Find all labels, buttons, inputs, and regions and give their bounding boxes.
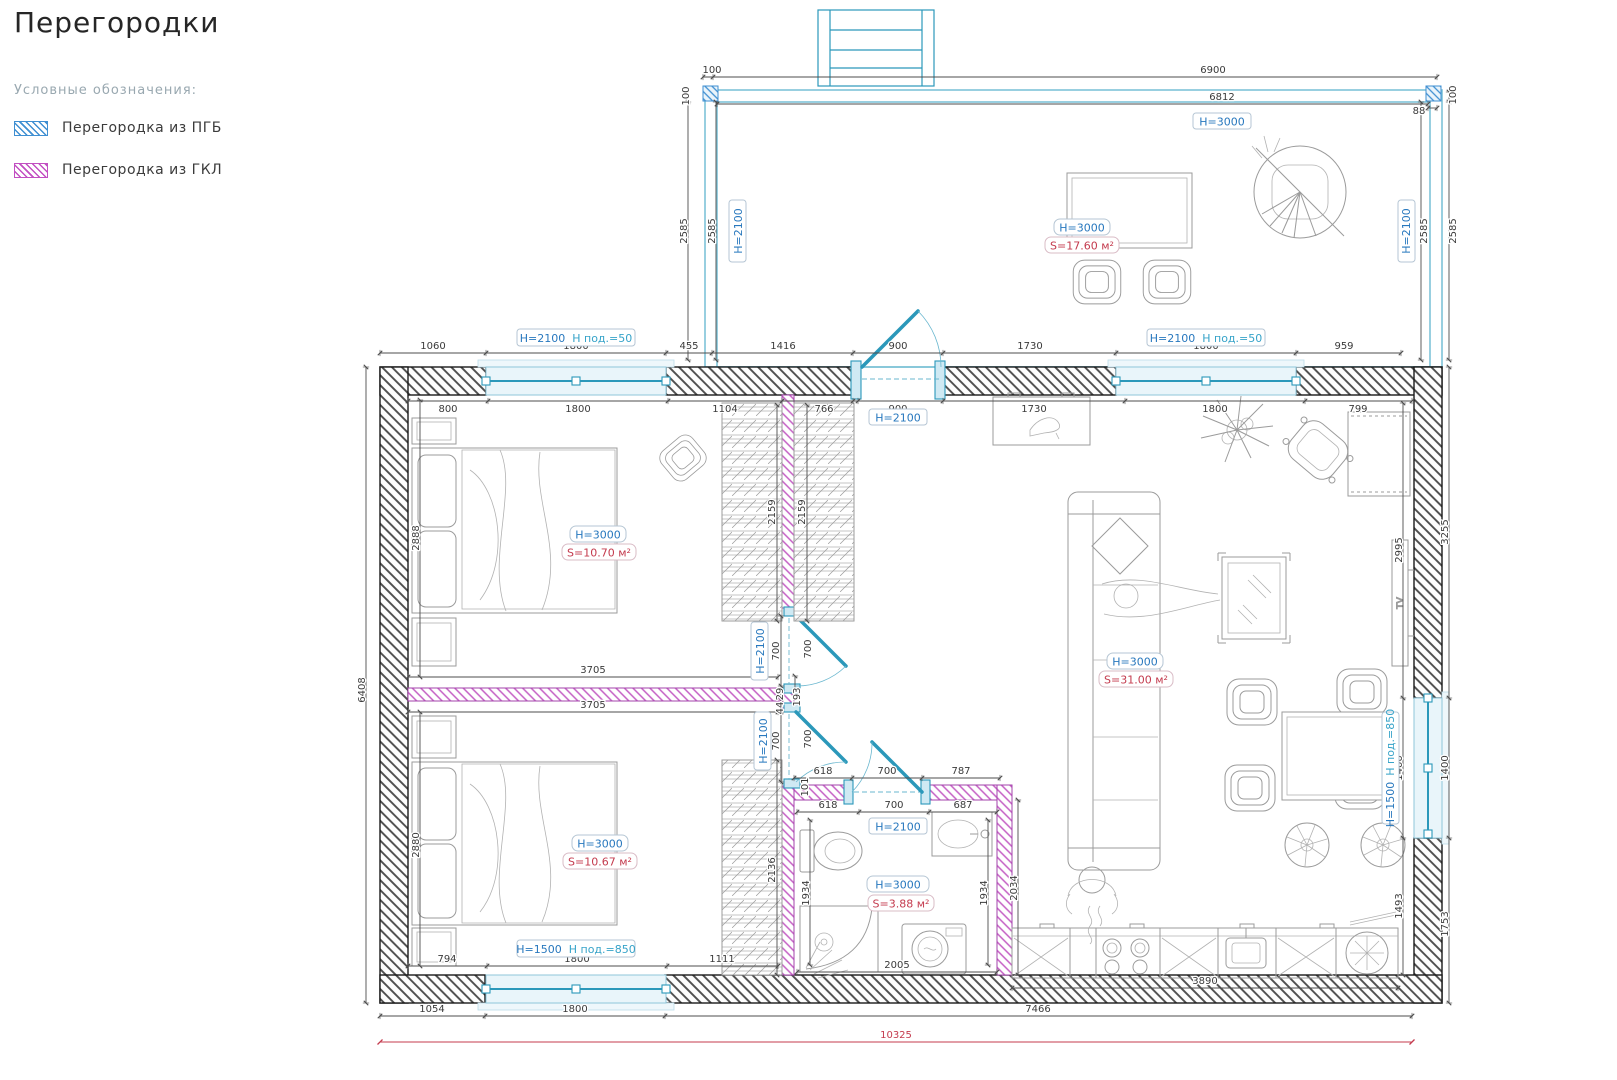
opening-labels: H=2100Н под.=50 H=2100Н под.=50 H=1500Н … xyxy=(516,113,1415,957)
dim: 88 xyxy=(1413,106,1426,117)
dim: 6900 xyxy=(1200,65,1225,76)
dim: 100 xyxy=(681,86,692,105)
entry-door xyxy=(851,311,945,399)
dim: 2880 xyxy=(411,832,422,857)
dim: 100 xyxy=(702,65,721,76)
dim: 618 xyxy=(813,766,832,777)
dim: 2585 xyxy=(1419,218,1430,243)
svg-text:H=2100Н под.=50: H=2100Н под.=50 xyxy=(1150,332,1263,345)
dim: 455 xyxy=(679,341,698,352)
dim: 2585 xyxy=(1448,218,1459,243)
door-height-label: H=2100 xyxy=(757,718,770,763)
dim: 44 xyxy=(775,702,786,715)
dim: 2034 xyxy=(1009,875,1020,900)
dim: 1060 xyxy=(420,341,445,352)
console-desk xyxy=(1348,412,1410,496)
room-area: S=3.88 м² xyxy=(873,898,930,911)
dim: 700 xyxy=(771,641,782,660)
dim: 900 xyxy=(888,341,907,352)
dim: 193 xyxy=(792,687,803,706)
drawing-header: Перегородки Условные обозначения: Перего… xyxy=(14,6,222,204)
dim: 1493 xyxy=(1394,893,1405,918)
kitchen-counter xyxy=(1012,912,1398,978)
legend-heading: Условные обозначения: xyxy=(14,83,222,98)
room-height: H=3000 xyxy=(1059,222,1104,235)
dim: 687 xyxy=(953,800,972,811)
window-height-label: H=1500 xyxy=(1384,782,1397,827)
dim: 700 xyxy=(803,639,814,658)
legend-label: Перегородка из ГКЛ xyxy=(62,162,222,178)
dim: 3705 xyxy=(580,700,605,711)
ceiling-lamps xyxy=(1285,823,1405,867)
window-sill-label: Н под.=50 xyxy=(572,332,632,345)
dim: 800 xyxy=(438,404,457,415)
dim: 794 xyxy=(437,954,456,965)
bedroom1-furniture xyxy=(412,418,710,666)
dim: 3255 xyxy=(1440,519,1451,544)
gkl-hatch-swatch-icon xyxy=(14,163,48,178)
veranda-height-label: H=3000 xyxy=(1199,116,1244,129)
dim: 1730 xyxy=(1017,341,1042,352)
dim: 7466 xyxy=(1025,1004,1050,1015)
dim: 1934 xyxy=(801,880,812,905)
dim: 618 xyxy=(818,800,837,811)
dim: 1800 xyxy=(565,404,590,415)
legend-item-pgb: Перегородка из ПГБ xyxy=(14,120,222,136)
kitchen-person xyxy=(1066,867,1117,944)
dim: 700 xyxy=(803,729,814,748)
dim: 3705 xyxy=(580,665,605,676)
svg-text:H=1500Н под.=850: H=1500Н под.=850 xyxy=(516,943,636,956)
svg-text:H=2100Н под.=50: H=2100Н под.=50 xyxy=(520,332,633,345)
door-height-label: H=2100 xyxy=(754,628,767,673)
window-height-label: H=1500 xyxy=(516,943,561,956)
room-height: H=3000 xyxy=(875,879,920,892)
partition-hall-upper xyxy=(782,395,794,608)
dim: 2159 xyxy=(767,499,778,524)
window-height-label: H=2100 xyxy=(1150,332,1195,345)
dim: 101 xyxy=(800,777,811,796)
dim: 1400 xyxy=(1440,755,1451,780)
dim: 700 xyxy=(771,731,782,750)
floor-plan: TV xyxy=(0,0,1617,1080)
dim: 2136 xyxy=(767,857,778,882)
dim: 6812 xyxy=(1209,92,1234,103)
window-top-left xyxy=(478,360,674,395)
door-height-label: H=2100 xyxy=(875,412,920,425)
dim: 799 xyxy=(1348,404,1367,415)
room-area: S=10.70 м² xyxy=(567,547,631,560)
partition-bath-top-right xyxy=(922,785,997,800)
room-height: H=3000 xyxy=(1112,656,1157,669)
dim-total: 10325 xyxy=(880,1030,912,1041)
legend-item-gkl: Перегородка из ГКЛ xyxy=(14,162,222,178)
dim: 700 xyxy=(877,766,896,777)
dim: 1730 xyxy=(1021,404,1046,415)
pgb-hatch-swatch-icon xyxy=(14,121,48,136)
dim: 787 xyxy=(951,766,970,777)
room-area: S=31.00 м² xyxy=(1104,674,1168,687)
hanging-chair xyxy=(1252,136,1346,238)
dim: 2585 xyxy=(707,218,718,243)
coffee-table-mirror xyxy=(1218,553,1290,643)
room-height: H=3000 xyxy=(577,838,622,851)
tv-label: TV xyxy=(1396,596,1406,609)
dim: 100 xyxy=(1448,85,1459,104)
veranda-post xyxy=(703,86,718,101)
dim: 29 xyxy=(775,688,786,701)
dim: 1104 xyxy=(712,404,737,415)
desk-chair xyxy=(1278,411,1358,489)
page-title: Перегородки xyxy=(14,6,222,39)
dim: 2995 xyxy=(1394,537,1405,562)
window-height-label: H=2100 xyxy=(520,332,565,345)
partition-hall-lower xyxy=(782,786,794,975)
dim: 2005 xyxy=(884,960,909,971)
dim: 1753 xyxy=(1440,911,1451,936)
dim: 766 xyxy=(814,404,833,415)
room-labels: H=3000 S=17.60 м² H=3000 S=10.70 м² H=30… xyxy=(562,219,1173,911)
window-sill-label: Н под.=850 xyxy=(569,943,636,956)
door-height-label: H=2100 xyxy=(875,821,920,834)
dim: 1111 xyxy=(709,954,734,965)
dim: 1054 xyxy=(419,1004,444,1015)
legend-label: Перегородка из ПГБ xyxy=(62,120,222,136)
veranda-wall-height-label: H=2100 xyxy=(1400,208,1413,253)
dim: 1800 xyxy=(1202,404,1227,415)
dim: 2159 xyxy=(797,499,808,524)
room-height: H=3000 xyxy=(575,529,620,542)
dim: 2888 xyxy=(411,525,422,550)
room-area: S=10.67 м² xyxy=(568,856,632,869)
veranda-wall-height-label: H=2100 xyxy=(732,208,745,253)
svg-text:H=1500Н под.=850: H=1500Н под.=850 xyxy=(1384,709,1397,828)
veranda-post xyxy=(1426,86,1441,101)
window-sill-label: Н под.=50 xyxy=(1202,332,1262,345)
window-sill-label: Н под.=850 xyxy=(1384,709,1397,776)
dim: 6408 xyxy=(357,677,368,702)
dim: 2585 xyxy=(679,218,690,243)
dim: 959 xyxy=(1334,341,1353,352)
dining-set xyxy=(1225,669,1390,811)
window-top-right xyxy=(1108,360,1304,395)
veranda-dresser xyxy=(818,10,934,86)
dim: 1416 xyxy=(770,341,795,352)
dim: 1800 xyxy=(562,1004,587,1015)
room-area: S=17.60 м² xyxy=(1050,240,1114,253)
dim: 3890 xyxy=(1192,976,1217,987)
dim: 700 xyxy=(884,800,903,811)
dim: 1934 xyxy=(979,880,990,905)
